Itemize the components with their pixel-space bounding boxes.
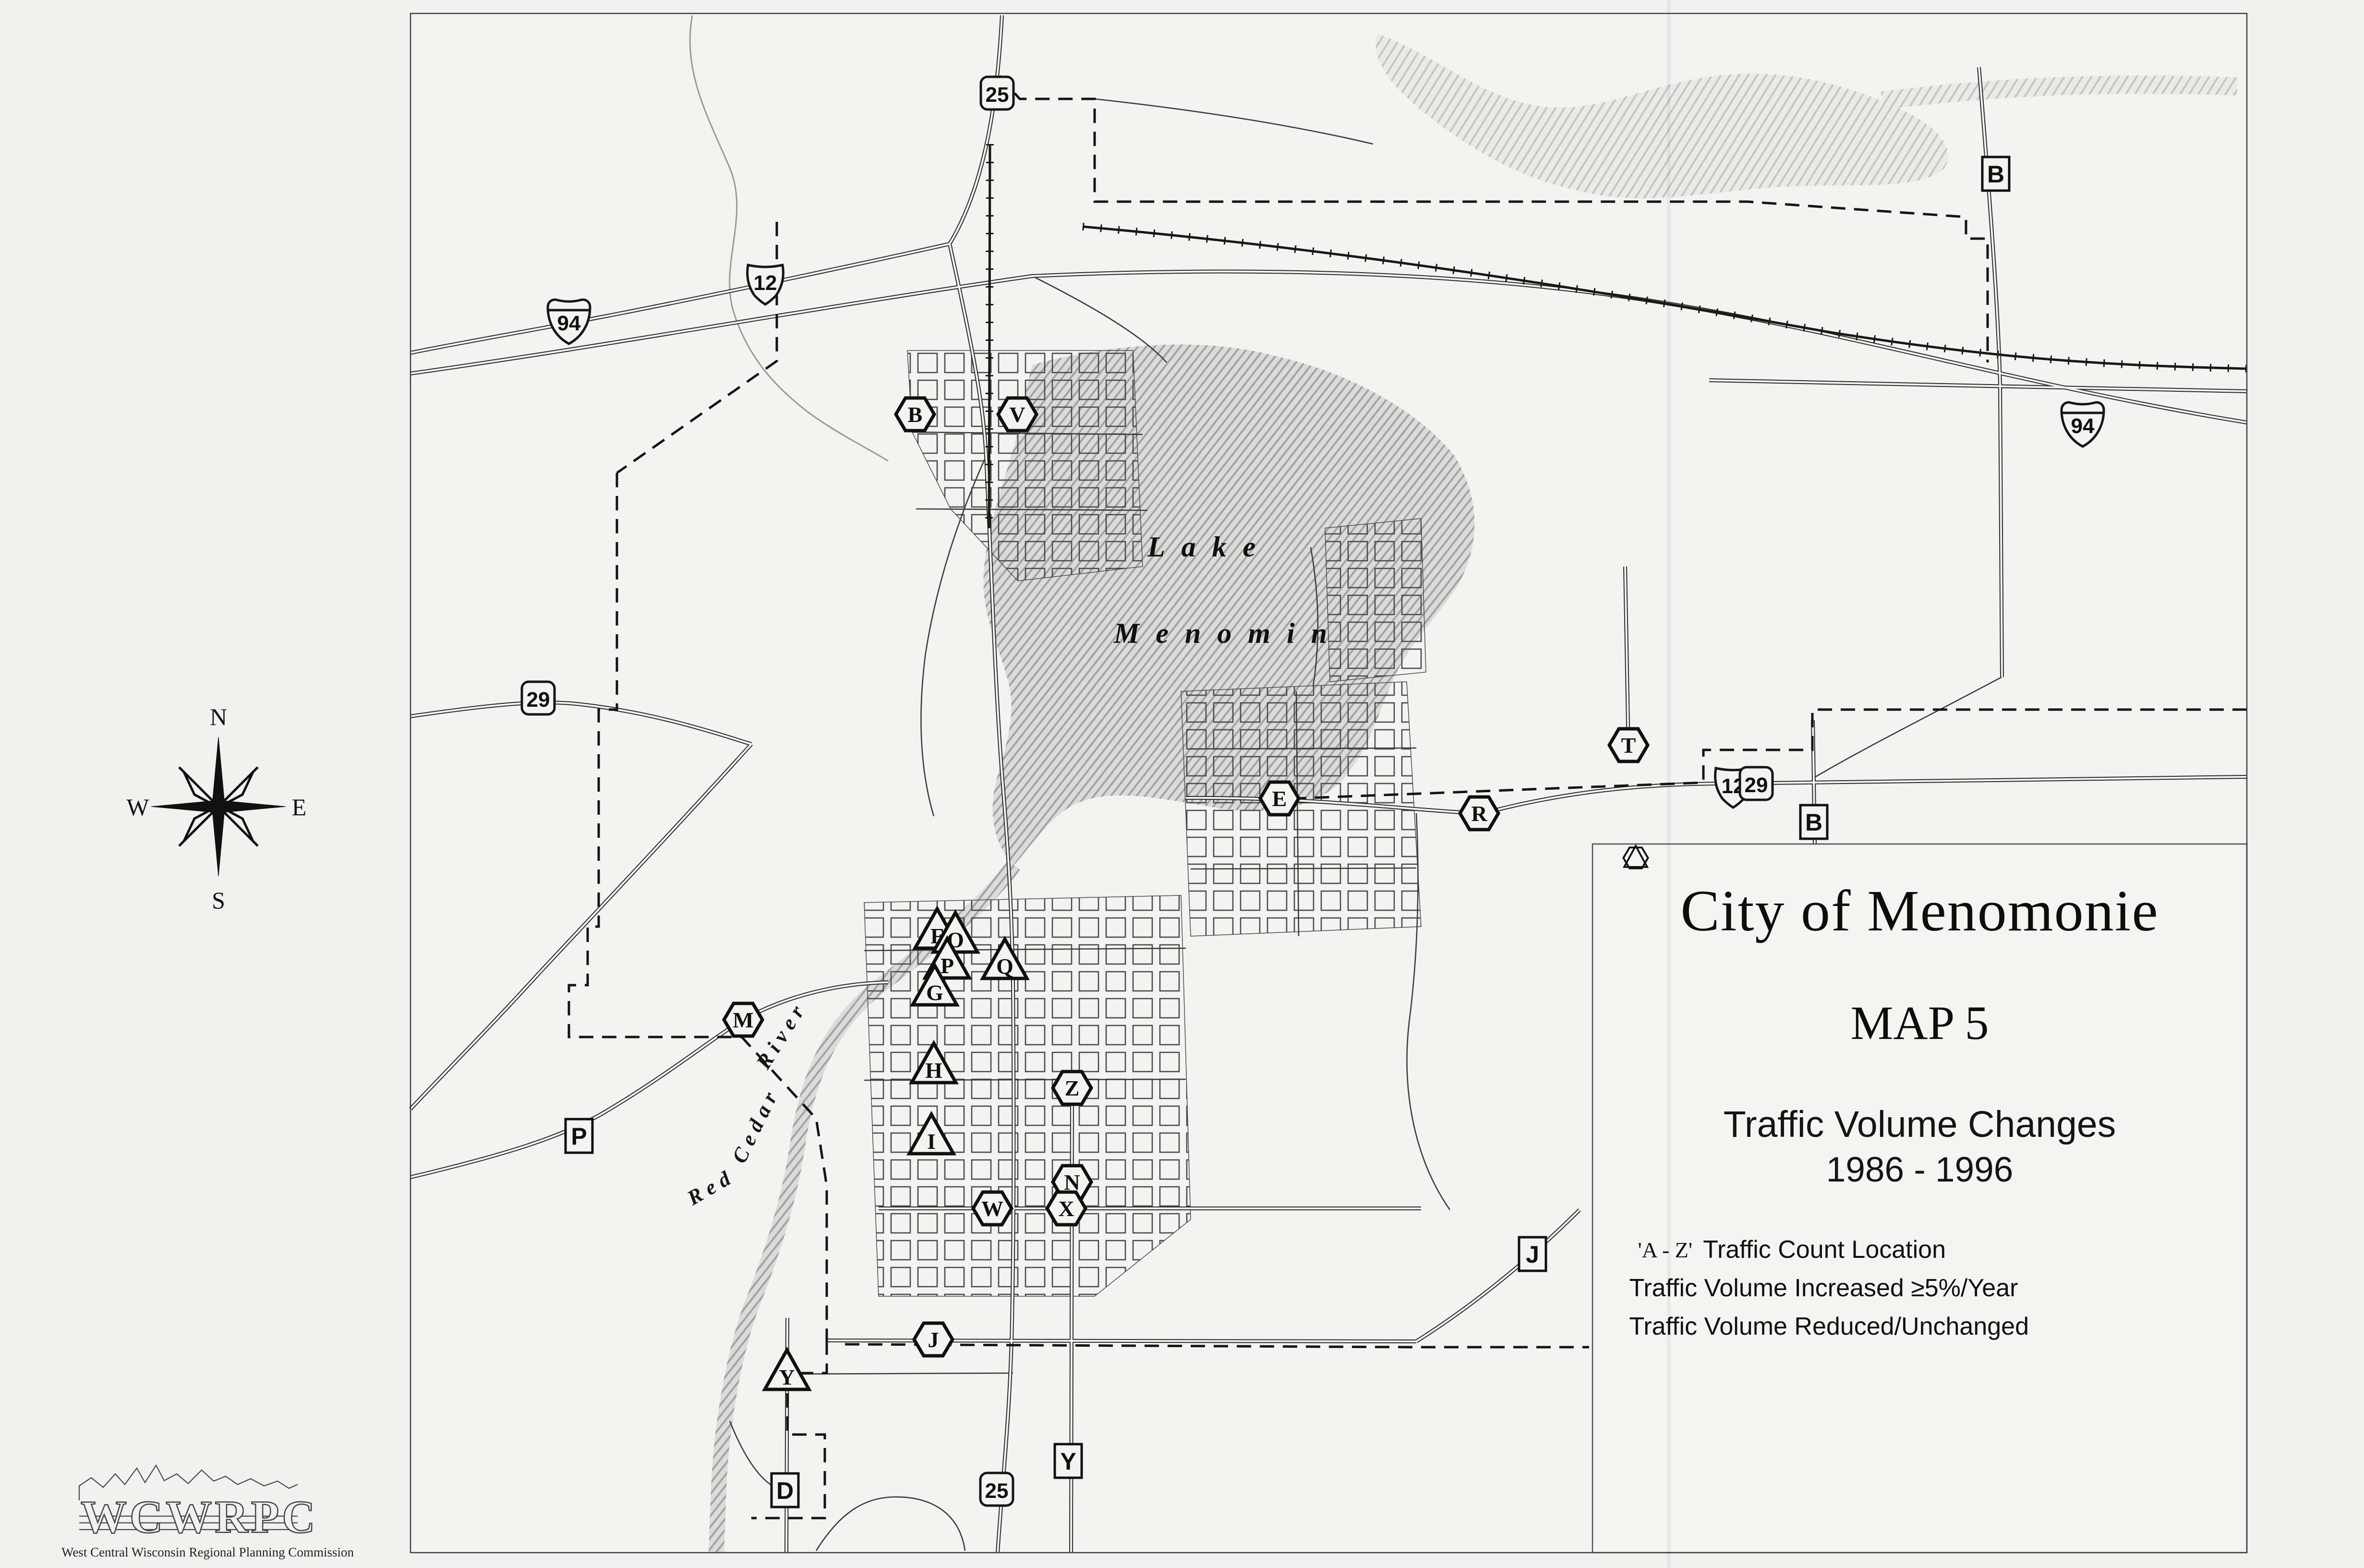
svg-text:29: 29 xyxy=(527,688,550,712)
street-grid-downtown xyxy=(864,895,1191,1296)
logo-acronym: WCWRPC xyxy=(81,1491,318,1543)
svg-text:Q: Q xyxy=(996,954,1013,978)
state-29-shield: 29 xyxy=(1740,767,1773,800)
legend-row-increased: Traffic Volume Increased ≥5%/Year xyxy=(1629,1274,2210,1303)
svg-text:29: 29 xyxy=(1745,773,1768,797)
svg-text:M: M xyxy=(733,1008,753,1032)
svg-text:B: B xyxy=(908,402,923,427)
legend: 'A - Z' Traffic Count Location Traffic V… xyxy=(1629,1235,2210,1341)
logo-caption: West Central Wisconsin Regional Planning… xyxy=(61,1545,354,1560)
svg-text:R: R xyxy=(1471,801,1487,826)
svg-text:94: 94 xyxy=(2071,414,2095,438)
svg-text:X: X xyxy=(1058,1196,1074,1221)
street-grid-east xyxy=(1181,682,1421,936)
traffic-count-Z-increased-hexagon: Z xyxy=(1053,1072,1091,1104)
county-road-Y-marker: Y xyxy=(1055,1444,1082,1478)
svg-text:25: 25 xyxy=(985,1479,1009,1503)
traffic-count-B-increased-hexagon: B xyxy=(896,398,934,431)
title-block: City of Menomonie MAP 5 Traffic Volume C… xyxy=(1592,844,2247,1553)
state-25-shield: 25 xyxy=(980,1473,1013,1506)
triangle-reduced-icon xyxy=(1620,844,1651,872)
legend-range-label: 'A - Z' xyxy=(1638,1237,1693,1263)
legend-increased-text: Traffic Volume Increased ≥5%/Year xyxy=(1629,1274,2018,1303)
svg-text:H: H xyxy=(925,1058,942,1083)
state-29-shield: 29 xyxy=(522,682,555,714)
svg-text:94: 94 xyxy=(557,312,581,335)
svg-text:P: P xyxy=(941,953,954,978)
svg-text:12: 12 xyxy=(754,271,777,295)
svg-text:B: B xyxy=(1987,161,2004,188)
legend-reduced-text: Traffic Volume Reduced/Unchanged xyxy=(1629,1312,2029,1341)
scanned-map-page: BVERTMZNWXJFOPQGHIYBBPJYD949412122525292… xyxy=(0,0,2364,1568)
map-subtitle: Traffic Volume Changes xyxy=(1592,1103,2247,1146)
svg-text:D: D xyxy=(776,1477,794,1504)
traffic-count-J-increased-hexagon: J xyxy=(914,1323,953,1356)
compass-west-label: W xyxy=(126,794,149,820)
legend-range-text: Traffic Count Location xyxy=(1703,1235,1946,1264)
svg-text:J: J xyxy=(928,1327,939,1352)
compass-rose: N S W E xyxy=(122,691,314,917)
compass-star-icon xyxy=(151,737,286,876)
svg-text:V: V xyxy=(1009,402,1025,427)
county-road-J-marker: J xyxy=(1519,1237,1546,1271)
compass-south-label: S xyxy=(212,887,225,914)
legend-row-range: 'A - Z' Traffic Count Location xyxy=(1629,1235,2210,1264)
svg-text:T: T xyxy=(1621,733,1636,758)
svg-text:I: I xyxy=(927,1129,936,1154)
map-title: City of Menomonie xyxy=(1592,878,2247,945)
railroad-downtown xyxy=(989,144,990,528)
svg-text:25: 25 xyxy=(986,83,1009,107)
svg-text:B: B xyxy=(1805,809,1822,836)
county-road-P-marker: P xyxy=(566,1119,592,1153)
compass-north-label: N xyxy=(210,703,227,730)
lake-label-line2: Menomin xyxy=(1114,617,1343,650)
state-25-shield: 25 xyxy=(981,77,1013,109)
svg-text:Y: Y xyxy=(1060,1448,1076,1475)
svg-text:E: E xyxy=(1272,786,1287,811)
svg-text:W: W xyxy=(981,1196,1003,1221)
svg-text:Z: Z xyxy=(1065,1076,1080,1100)
street-grid-northeast xyxy=(1325,519,1426,682)
traffic-count-M-increased-hexagon: M xyxy=(724,1003,762,1036)
traffic-count-R-increased-hexagon: R xyxy=(1460,797,1498,830)
legend-row-reduced: Traffic Volume Reduced/Unchanged xyxy=(1629,1312,2210,1341)
lake-label-line1: Lake xyxy=(1147,531,1272,564)
svg-text:Y: Y xyxy=(779,1365,795,1389)
county-road-B-marker: B xyxy=(1982,157,2009,191)
map-number: MAP 5 xyxy=(1592,995,2247,1050)
traffic-count-X-increased-hexagon: X xyxy=(1047,1192,1086,1225)
traffic-count-V-increased-hexagon: V xyxy=(998,398,1037,431)
county-road-D-marker: D xyxy=(772,1473,798,1507)
traffic-count-T-increased-hexagon: T xyxy=(1609,729,1648,761)
county-road-B-marker: B xyxy=(1800,805,1827,839)
map-years: 1986 - 1996 xyxy=(1592,1150,2247,1190)
compass-east-label: E xyxy=(292,794,307,820)
svg-text:G: G xyxy=(926,980,943,1005)
svg-text:P: P xyxy=(571,1123,587,1150)
traffic-count-W-increased-hexagon: W xyxy=(973,1192,1012,1225)
traffic-count-E-increased-hexagon: E xyxy=(1260,782,1299,815)
svg-text:J: J xyxy=(1526,1241,1539,1268)
